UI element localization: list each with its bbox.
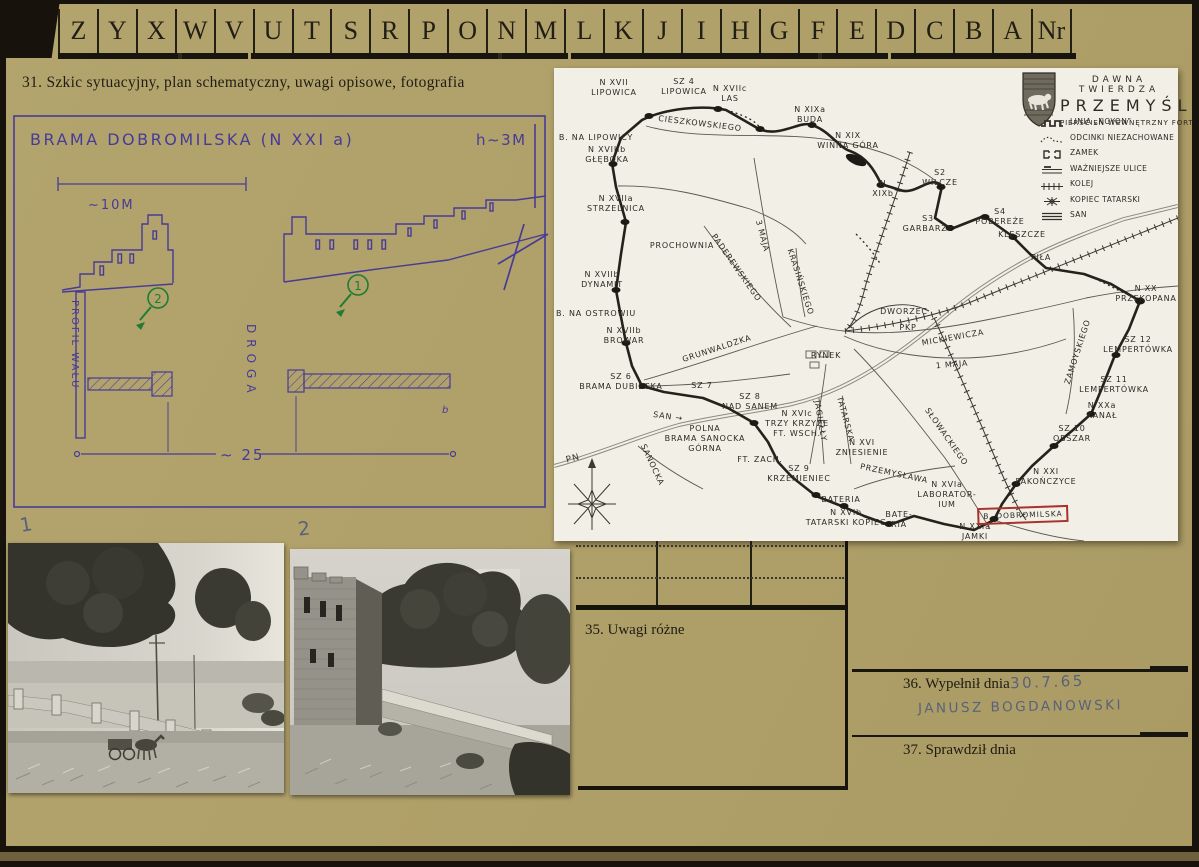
tab-v: V [214, 9, 253, 53]
map-label: POLNA BRAMA SANOCKA GÓRNA [665, 424, 746, 454]
map-label: FT. ZACH. [737, 455, 783, 465]
tab-i: I [681, 9, 720, 53]
photo-2-number: 2 [297, 517, 311, 540]
sketch-drawing: BRAMA DOBROMILSKA (N XXI a) h∼3M ∼10M [10, 112, 550, 512]
scale-10m-label: ∼10M [88, 198, 135, 213]
map-label: 1 MAJA [935, 359, 968, 372]
tab-n: N [486, 9, 525, 53]
tab-z: Z [58, 9, 97, 53]
map-label: PADEREWSKIEGO [709, 232, 763, 303]
map-label: BATERIA [821, 495, 860, 505]
dimension-line-25 [75, 452, 456, 457]
green-marker-1-number: 1 [354, 279, 362, 293]
section-37-label: 37. Sprawdził dnia [903, 742, 1016, 759]
photo-2-image [290, 549, 570, 795]
map-label: N XVIIb BROWAR [604, 326, 645, 346]
map-panel: DAWNA TWIERDZA PRZEMYŚL PIERŚCIEŃ WEWNĘT… [554, 68, 1178, 541]
foundation-hatch-right [288, 370, 450, 392]
map-label: SZ 4 LIPOWICA [661, 77, 707, 97]
sketch-height-note: h∼3M [476, 131, 527, 149]
map-label: KRASIŃSKIEGO [785, 248, 816, 317]
tab-a: A [992, 9, 1031, 53]
photo-1-image [8, 543, 284, 793]
map-label: GRUNWALDZKA [681, 333, 753, 365]
foundation-hatch-left [88, 372, 172, 396]
map-label: CIESZKOWSKIEGO [658, 114, 743, 134]
tab-g: G [759, 9, 798, 53]
map-label: PKP [899, 323, 916, 333]
tab-nr: Nr [1031, 9, 1072, 53]
tab-j: J [642, 9, 681, 53]
map-label: N XXIa JAMKI [959, 522, 991, 542]
tab-m: M [525, 9, 564, 53]
map-label: SZ 9 KRZEMIENIEC [767, 464, 830, 484]
map-label: S2 WILCZE [922, 168, 958, 188]
photo-2 [290, 549, 570, 795]
green-marker-1: 1 [336, 275, 368, 317]
map-label: N XXa KANAŁ [1087, 401, 1118, 421]
map-label: N XXI PAKOŃCZYCE [1015, 467, 1076, 487]
squiggle-mark: b [442, 405, 448, 416]
map-label: RYNEK [811, 351, 841, 361]
map-label: N XVIIc LAS [713, 84, 747, 104]
map-label: DWORZEC [880, 307, 928, 317]
section-37-rule [852, 735, 1188, 737]
map-label: B. NA OSTROWIU [556, 309, 636, 319]
map-label: N XIXa BUDA [794, 105, 826, 125]
map-label: KLESZCZE [998, 230, 1046, 240]
tab-strip: ZYXWVUTSRPONMLKJIHGFEDCBANr [58, 9, 1072, 53]
tab-y: Y [97, 9, 136, 53]
map-label: N XVIIIb GŁĘBOKA [585, 145, 629, 165]
map-label: SŁOWACKIEGO [922, 406, 969, 468]
tab-c: C [914, 9, 953, 53]
section-36-label: 36. Wypełnił dnia [903, 676, 1010, 693]
section-35-label: 35. Uwagi różne [585, 622, 685, 639]
tab-e: E [836, 9, 875, 53]
form-column-line-2 [750, 541, 752, 607]
section-31-label: 31. Szkic sytuacyjny, plan schematyczny,… [22, 74, 465, 92]
tab-r: R [369, 9, 408, 53]
form-dotted-line-2 [576, 577, 844, 579]
highlight-box-dobromilska: B. DOBROMILSKA [977, 505, 1069, 525]
scan-bottom-edge [0, 852, 1199, 861]
form-column-line-1 [656, 541, 658, 607]
sketch-panel: BRAMA DOBROMILSKA (N XXI a) h∼3M ∼10M [10, 112, 550, 512]
tab-w: W [175, 9, 214, 53]
map-label: SAN → [652, 410, 683, 424]
photo-1 [8, 543, 284, 793]
tab-x: X [136, 9, 175, 53]
map-label: SZ 7 [691, 381, 712, 391]
form-vertical-divider [845, 541, 848, 789]
sketch-title: BRAMA DOBROMILSKA (N XXI a) [30, 130, 354, 149]
scan-corner-shadow [0, 0, 60, 58]
form-thick-rule [576, 605, 846, 610]
map-label: N XVI ZNIESIENIE [836, 438, 889, 458]
gate-structure [294, 567, 382, 735]
map-label: 3 MAJA [753, 219, 771, 253]
tab-o: O [447, 9, 486, 53]
tab-p: P [408, 9, 447, 53]
form-dotted-line-1 [576, 545, 844, 547]
sketch-border [14, 116, 545, 507]
map-label: N XVII LIPOWICA [591, 78, 637, 98]
map-label: N XIX WINNA GÓRA [817, 131, 878, 151]
map-label: SZ 8 NAD SANEM [722, 392, 778, 412]
x-mark [498, 224, 548, 290]
map-label: B. NA LIPOWICY [559, 133, 633, 143]
map-label: SZ 11 LEMPERTÓWKA [1079, 375, 1149, 395]
tab-h: H [720, 9, 759, 53]
droga-label: DROGA [244, 324, 258, 399]
green-marker-2: 2 [136, 288, 168, 330]
tab-k: K [603, 9, 642, 53]
dimension-25-label: ∼ 25 [220, 446, 264, 464]
wall-profile-right [284, 196, 546, 282]
map-label: SZ 12 LEMPERTÓWKA [1103, 335, 1173, 355]
map-label: S4 POBEREŻE [975, 207, 1024, 227]
section-36-rule-end [1150, 666, 1188, 671]
tab-t: T [292, 9, 331, 53]
map-label: S3 GARBARZE [903, 214, 954, 234]
tab-b: B [953, 9, 992, 53]
map-label: SZ 6 BRAMA DUBIECKA [579, 372, 662, 392]
map-label: BATE- RIA [885, 510, 912, 530]
map-label: PROCHOWNIA [650, 241, 714, 251]
map-label: N XX PRZEKOPANA [1115, 284, 1176, 304]
map-label: SANOCKA [638, 443, 666, 488]
map-label: N XVIIa STRZELNICA [587, 194, 645, 214]
tab-u: U [253, 9, 292, 53]
profil-walu-label: PROFIL WAŁU [69, 300, 80, 389]
map-label: N XIXb [872, 179, 894, 199]
scale-bar-10m [58, 177, 246, 191]
section-36-rule [852, 669, 1188, 672]
section-37-rule-end [1140, 732, 1188, 736]
map-label: N XVIIb DYNAMIT [581, 270, 623, 290]
green-marker-2-number: 2 [154, 292, 162, 306]
section-35-bottom-rule [578, 786, 848, 790]
tab-s: S [330, 9, 369, 53]
map-label: N XVIa LABORATOR- IUM [917, 480, 976, 510]
tab-d: D [875, 9, 914, 53]
map-label: PIŁA [1031, 253, 1051, 263]
map-label: N XVIb TATARSKI KOPIEC [806, 508, 887, 528]
tab-l: L [564, 9, 603, 53]
map-label: TATARSKA [834, 395, 856, 442]
map-label: SZ 10 OBSZAR [1053, 424, 1091, 444]
tab-rule [58, 53, 1076, 59]
guide-lines [168, 396, 296, 452]
handwritten-date: 30.7.65 [1010, 672, 1085, 693]
tab-f: F [798, 9, 837, 53]
map-labels: N XVII LIPOWICASZ 4 LIPOWICAN XVIIc LASB… [554, 68, 1178, 541]
map-label: MICKIEWICZA [921, 328, 985, 349]
